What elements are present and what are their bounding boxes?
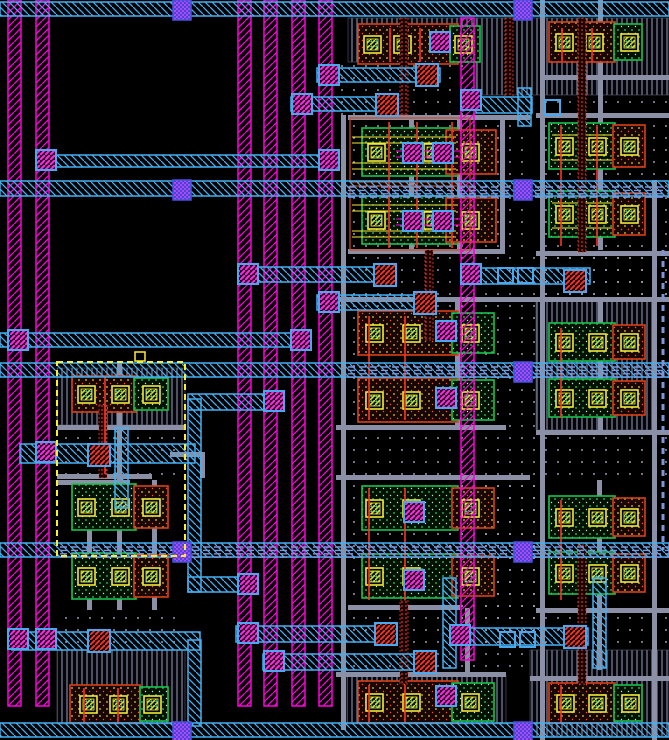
via1-metal1-metal2 xyxy=(36,150,56,170)
via2-metal-bus xyxy=(514,0,532,20)
via1-metal1-metal2 xyxy=(319,65,339,85)
metal2-stripe xyxy=(461,18,474,660)
gray-rail-horizontal xyxy=(536,251,669,256)
diff-contact-core xyxy=(371,147,382,158)
chip-layout-drawing xyxy=(0,0,669,740)
metal2-stripe xyxy=(238,0,251,706)
via1-metal1-metal2 xyxy=(461,264,481,284)
poly-contact xyxy=(414,651,436,673)
diff-contact-core xyxy=(147,699,158,710)
poly-contact xyxy=(88,444,110,466)
metal1-wire-horizontal xyxy=(263,654,436,670)
via1-metal1-metal2 xyxy=(36,629,56,649)
diff-contact-core xyxy=(624,512,635,523)
diff-contact-core xyxy=(406,395,417,406)
diff-contact-core xyxy=(624,568,635,579)
metal1-wire-vertical xyxy=(518,88,531,126)
via1-metal1-metal2 xyxy=(433,143,453,163)
device-row xyxy=(72,376,168,412)
device-row xyxy=(549,22,642,62)
via1-metal1-metal2 xyxy=(291,330,311,350)
via1-metal1-metal2 xyxy=(436,388,456,408)
diff-contact-core xyxy=(624,209,635,220)
poly-column xyxy=(578,545,586,684)
diff-contact-core xyxy=(406,328,417,339)
via1-metal1-metal2 xyxy=(319,292,339,312)
poly-contact xyxy=(564,626,586,648)
selection-origin-marker xyxy=(135,352,145,361)
diff-contact-core xyxy=(465,697,476,708)
via2-metal-bus xyxy=(514,722,532,740)
metal1-wire-vertical xyxy=(188,640,201,726)
diff-contact-core xyxy=(625,698,636,709)
diff-contact-core xyxy=(369,328,380,339)
poly-column xyxy=(578,18,586,252)
metal1-wire-vertical xyxy=(188,399,201,592)
via2-metal-bus xyxy=(514,542,532,562)
via1-metal1-metal2 xyxy=(238,264,258,284)
diff-contact-core xyxy=(81,389,92,400)
metal1-wire-horizontal xyxy=(0,333,305,347)
poly-contact xyxy=(564,270,586,292)
diff-contact-core xyxy=(592,393,603,404)
diff-contact-core xyxy=(624,37,635,48)
metal1-wire-horizontal xyxy=(238,267,395,282)
via2-metal-bus xyxy=(514,180,532,200)
diff-contact-core xyxy=(559,37,570,48)
via1-metal1-metal2 xyxy=(238,623,258,643)
gray-rail-horizontal xyxy=(536,430,669,435)
diff-contact-core xyxy=(371,215,382,226)
metal1-wire-horizontal xyxy=(0,723,669,737)
diff-contact-core xyxy=(624,337,635,348)
metal1-wire-vertical xyxy=(443,578,456,668)
diff-contact-core xyxy=(589,37,600,48)
layout-editor-canvas[interactable] xyxy=(0,0,669,740)
poly-contact xyxy=(88,630,110,652)
via1-metal1-metal2 xyxy=(433,211,453,231)
metal2-stripe xyxy=(8,0,21,706)
poly-contact xyxy=(375,623,397,645)
diff-contact-core xyxy=(624,141,635,152)
diff-contact-core xyxy=(81,571,92,582)
device-row xyxy=(549,379,645,417)
metal1-wire-horizontal xyxy=(236,626,396,642)
via1-metal1-metal2 xyxy=(292,94,312,114)
metal1-wire-horizontal xyxy=(0,2,669,16)
device-row xyxy=(549,323,645,361)
device-row xyxy=(72,553,168,599)
via2-metal-bus xyxy=(173,180,191,200)
diff-contact-core xyxy=(369,503,380,514)
gray-rail-horizontal xyxy=(336,475,530,480)
diff-contact-core xyxy=(146,389,157,400)
via1-metal1-metal2 xyxy=(264,391,284,411)
poly-column xyxy=(505,18,513,97)
diff-contact-core xyxy=(592,698,603,709)
via1-metal1-metal2 xyxy=(8,330,28,350)
device-row xyxy=(549,683,642,723)
via2-metal-bus xyxy=(173,722,191,740)
via1-metal1-metal2 xyxy=(430,32,450,52)
diff-contact-core xyxy=(369,395,380,406)
diff-contact-core xyxy=(369,571,380,582)
gray-rail-horizontal xyxy=(336,425,506,430)
diff-contact-core xyxy=(406,697,417,708)
via1-metal1-metal2 xyxy=(404,502,424,522)
diff-contact-core xyxy=(369,697,380,708)
diff-contact-core xyxy=(115,571,126,582)
via2-metal-bus xyxy=(514,362,532,382)
diff-contact-core xyxy=(81,502,92,513)
metal1-wire-horizontal xyxy=(36,155,333,167)
diff-contact-core xyxy=(146,571,157,582)
poly-contact xyxy=(416,64,438,86)
poly-contact xyxy=(376,94,398,116)
via1-metal1-metal2 xyxy=(264,651,284,671)
device-row xyxy=(549,496,645,538)
poly-column xyxy=(400,18,408,115)
via1-metal1-metal2 xyxy=(436,686,456,706)
via1-metal1-metal2 xyxy=(404,570,424,590)
via1-metal1-metal2 xyxy=(461,90,481,110)
metal1-wire-vertical xyxy=(593,578,606,668)
via2-metal-bus xyxy=(173,0,191,20)
poly-contact xyxy=(374,264,396,286)
gray-rail-vertical xyxy=(652,180,657,740)
poly-column xyxy=(99,405,107,478)
via1-metal1-metal2 xyxy=(403,143,423,163)
via1-metal1-metal2 xyxy=(436,321,456,341)
device-row xyxy=(358,681,494,723)
diff-contact-core xyxy=(592,337,603,348)
diff-contact-core xyxy=(592,512,603,523)
poly-column xyxy=(400,600,408,684)
via1-metal1-metal2 xyxy=(36,442,56,462)
via1-metal1-metal2 xyxy=(8,629,28,649)
diff-contact-core xyxy=(624,393,635,404)
metal2-stripe xyxy=(264,0,277,706)
diff-contact-core xyxy=(115,389,126,400)
via2-metal-bus xyxy=(173,542,191,562)
via1-metal1-metal2 xyxy=(319,150,339,170)
gray-rail-horizontal xyxy=(530,676,669,681)
via1-metal1-metal2 xyxy=(403,211,423,231)
well-dotted-region xyxy=(336,430,669,475)
via1-metal1-metal2 xyxy=(450,625,470,645)
gray-rail-horizontal xyxy=(545,75,669,80)
poly-contact xyxy=(414,292,436,314)
diff-contact-core xyxy=(367,39,378,50)
via1-metal1-metal2 xyxy=(238,574,258,594)
diff-contact-core xyxy=(146,502,157,513)
metal2-stripe xyxy=(36,0,49,706)
metal1-wire-vertical xyxy=(115,428,128,508)
